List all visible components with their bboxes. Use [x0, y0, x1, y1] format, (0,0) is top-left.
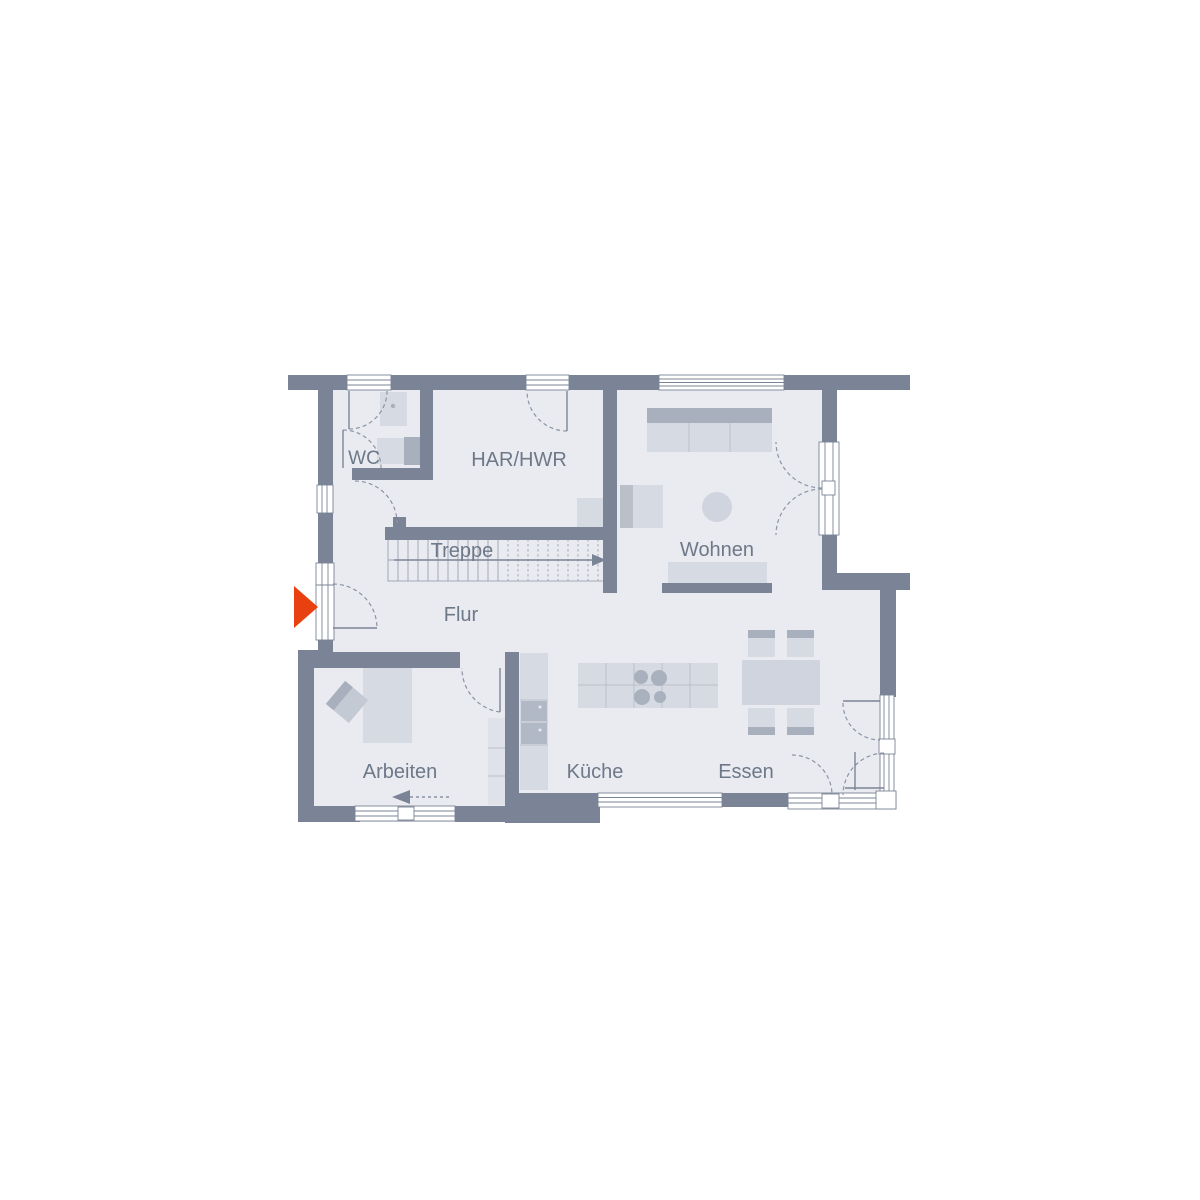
floorplan-page: WC HAR/HWR Treppe Wohnen Flur Arbeiten K…: [0, 0, 1200, 1200]
window-wc: [347, 375, 391, 390]
wall-left-mid: [318, 513, 333, 563]
desk: [363, 668, 412, 743]
arbeiten-side-cabinet: [488, 718, 505, 805]
stairs-treppe: [388, 539, 608, 581]
dining-table: [742, 660, 820, 705]
armchair-back: [620, 485, 633, 528]
room-label-treppe: Treppe: [431, 540, 494, 562]
wall-essen-right: [880, 590, 896, 697]
floorplan-svg: WC HAR/HWR Treppe Wohnen Flur Arbeiten K…: [0, 0, 1200, 1200]
wall-kitchen-divider: [505, 652, 519, 807]
toilet-bowl: [377, 438, 404, 464]
coffee-table: [702, 492, 732, 522]
toilet-tank: [404, 437, 420, 465]
wall-wc-bottom: [352, 468, 433, 480]
washbasin: [380, 392, 407, 426]
sofa-back: [647, 408, 772, 423]
wall-left-upper: [318, 390, 333, 485]
oven: [521, 701, 547, 721]
washer-appliance: [577, 498, 607, 528]
wall-arbeiten-bottom-left: [298, 806, 360, 822]
room-label-wc: WC: [348, 448, 380, 469]
wall-wohnen-right-upper: [822, 390, 837, 442]
oven: [521, 723, 547, 744]
wall-bottom-thick: [505, 793, 600, 823]
entrance-arrow-icon: [294, 586, 318, 628]
wall-low-sideboard: [662, 583, 772, 593]
window-arbeiten: [355, 806, 455, 821]
glass-essen-bottom: [788, 791, 896, 809]
floor-essen-east: [822, 590, 880, 807]
wall-central: [603, 390, 617, 593]
wall-arbeiten-left: [298, 665, 314, 822]
window-har: [526, 375, 569, 390]
room-label-arbeiten: Arbeiten: [363, 761, 438, 783]
room-label-kueche: Küche: [567, 761, 624, 783]
wall-stair-nub: [393, 517, 406, 527]
window-wohnen: [659, 375, 784, 390]
wall-bottom-kitchen-right: [722, 793, 788, 807]
window-flur-left: [317, 485, 333, 513]
wall-arbeiten-top: [298, 652, 460, 668]
room-label-flur: Flur: [444, 604, 479, 626]
room-label-har-hwr: HAR/HWR: [471, 449, 567, 471]
sideboard: [668, 562, 767, 583]
wall-wc-right: [420, 390, 433, 480]
entrance-door-frame: [316, 563, 334, 640]
washbasin-drain-icon: [391, 404, 395, 408]
room-label-essen: Essen: [718, 761, 774, 783]
sofa-seat: [647, 423, 772, 452]
window-kueche: [598, 793, 722, 807]
wall-stair-top: [385, 527, 617, 540]
room-label-wohnen: Wohnen: [680, 539, 754, 561]
glass-essen-right: [879, 695, 895, 807]
wall-right-band: [822, 573, 910, 590]
